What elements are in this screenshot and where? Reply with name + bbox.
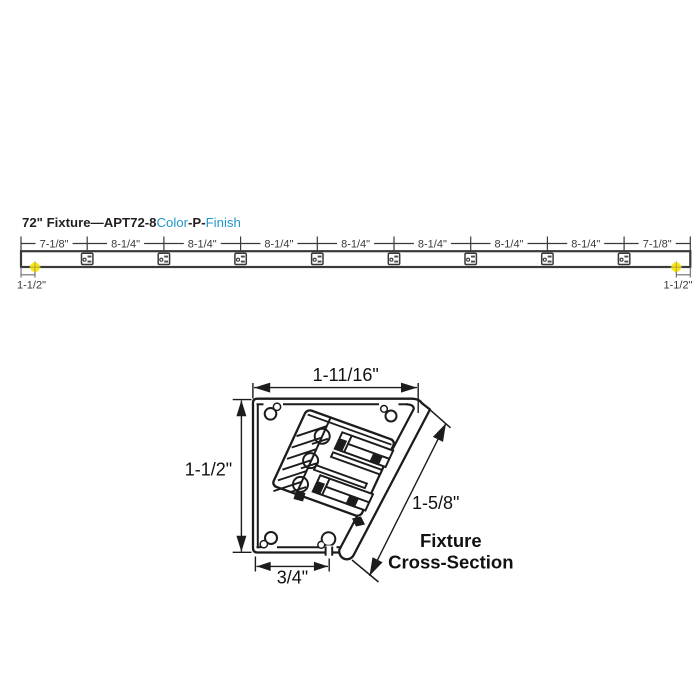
svg-text:8-1/4": 8-1/4" (111, 238, 140, 250)
svg-text:1-1/2": 1-1/2" (185, 460, 232, 480)
svg-text:7-1/8": 7-1/8" (40, 238, 69, 250)
svg-text:1-5/8": 1-5/8" (412, 493, 459, 513)
svg-text:Fixture: Fixture (420, 530, 482, 551)
svg-text:1-11/16": 1-11/16" (313, 365, 379, 385)
svg-text:1-1/2": 1-1/2" (17, 280, 46, 292)
svg-text:8-1/4": 8-1/4" (341, 238, 370, 250)
svg-text:8-1/4": 8-1/4" (418, 238, 447, 250)
svg-text:7-1/8": 7-1/8" (643, 238, 672, 250)
svg-text:8-1/4": 8-1/4" (495, 238, 524, 250)
svg-text:8-1/4": 8-1/4" (571, 238, 600, 250)
svg-text:8-1/4": 8-1/4" (264, 238, 293, 250)
svg-text:1-1/2": 1-1/2" (664, 280, 693, 292)
svg-text:Cross-Section: Cross-Section (388, 552, 513, 573)
svg-text:3/4": 3/4" (277, 568, 308, 588)
svg-text:8-1/4": 8-1/4" (188, 238, 217, 250)
svg-text:72" Fixture—APT72-8Color-P-Fin: 72" Fixture—APT72-8Color-P-Finish (22, 215, 241, 230)
